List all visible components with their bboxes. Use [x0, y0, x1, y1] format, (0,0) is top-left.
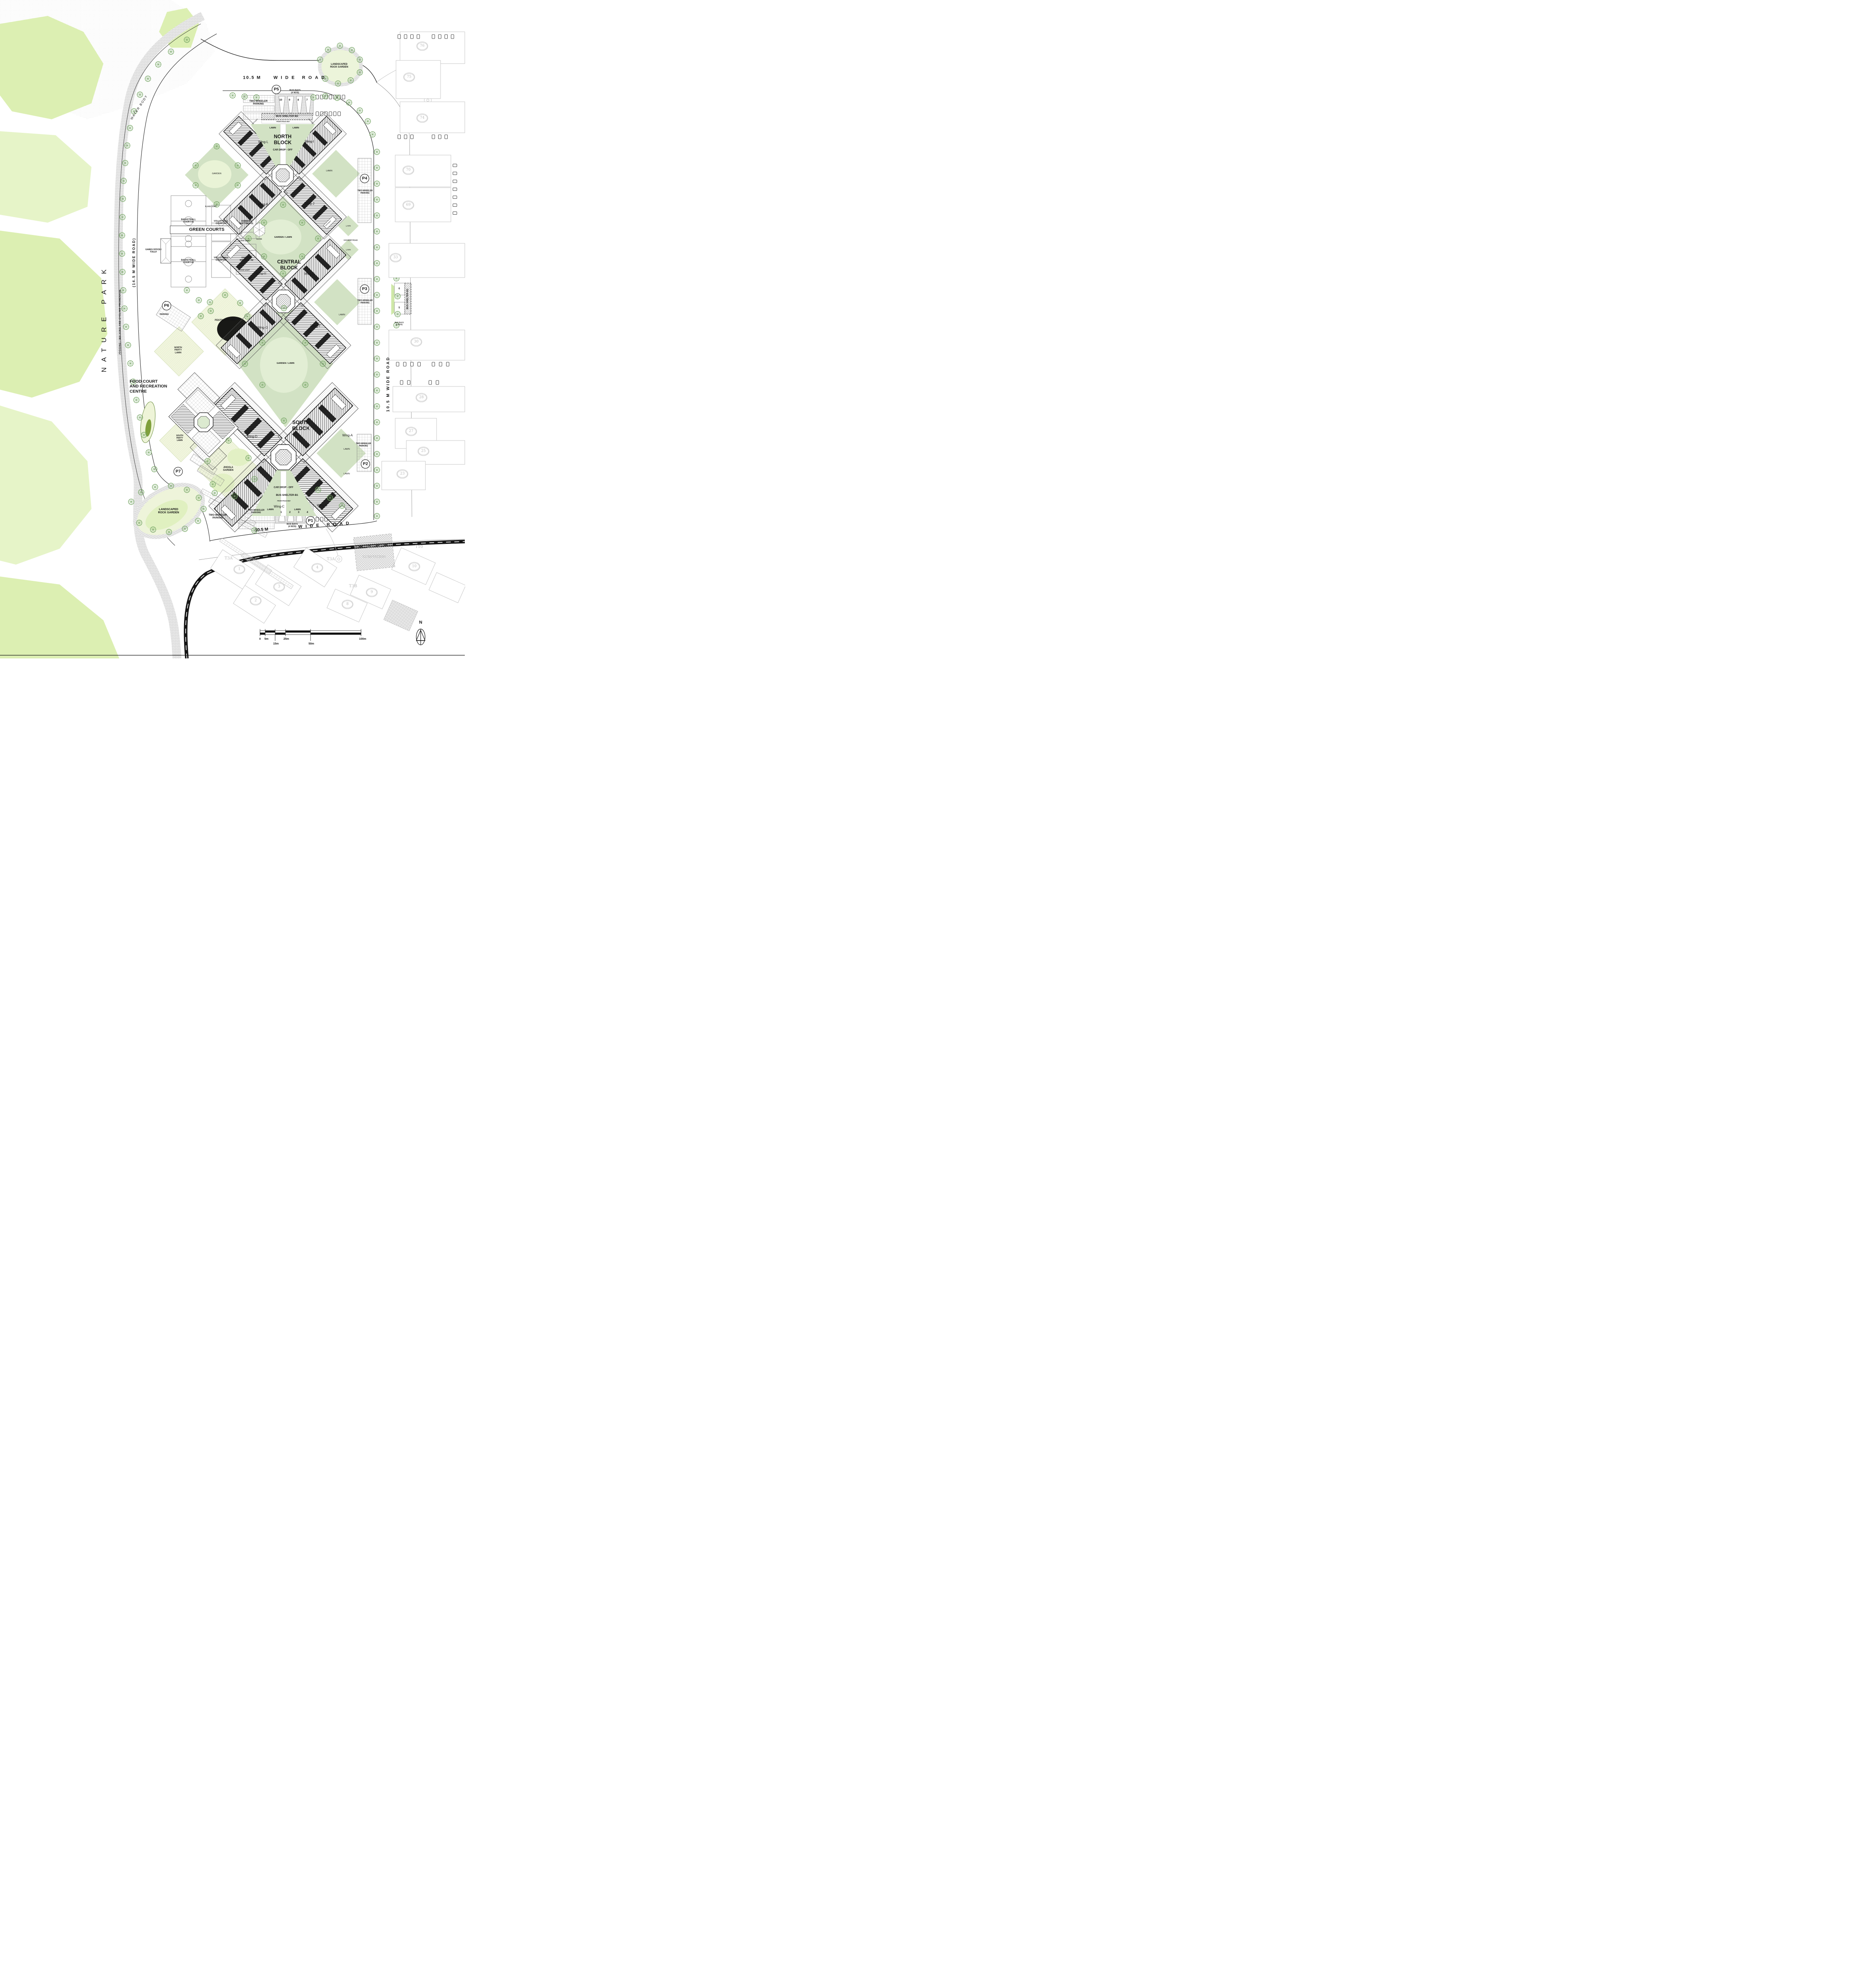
- substation-area: [353, 534, 395, 571]
- park-patch-5: [0, 577, 119, 658]
- north-arrow: [416, 629, 425, 645]
- p5-two-wheeler-grid-2: [243, 106, 274, 111]
- p2-strip: [357, 434, 371, 472]
- p5-car-stalls: [316, 95, 345, 116]
- bus-bay-6-stall: [394, 283, 405, 295]
- jhoola-blob-1: [227, 448, 250, 466]
- central-block-core: [272, 290, 295, 313]
- park-patch-2: [0, 131, 91, 223]
- garden-lawn-2-blob: [260, 337, 308, 393]
- garden-lawn-1-blob: [260, 219, 301, 254]
- park-patch-4: [0, 406, 91, 565]
- amphitheatre-lawn: [138, 401, 157, 444]
- north-party-lawn-area: [154, 327, 204, 376]
- site-plan-canvas: 10.5 MWIDE ROADLANDSCAPED ROCK GARDENP5B…: [0, 0, 465, 658]
- p4-strip: [358, 158, 371, 223]
- site-plan-drawing: [0, 0, 465, 658]
- scale-bar: [260, 629, 361, 641]
- park-patch-3: [0, 231, 107, 398]
- garden-west-blob: [198, 160, 231, 188]
- south-driveway: [281, 471, 286, 516]
- bus-shelter-b3: [262, 113, 313, 120]
- bus-shelter-b2: [405, 283, 411, 314]
- pedestrian-way-north: [262, 120, 313, 123]
- south-block-core: [271, 445, 296, 470]
- promenade-path: [118, 16, 203, 658]
- north-block-core: [272, 165, 293, 186]
- b2-green-strip: [391, 284, 394, 315]
- p3-strip: [358, 278, 371, 324]
- p6-lot: [156, 301, 191, 332]
